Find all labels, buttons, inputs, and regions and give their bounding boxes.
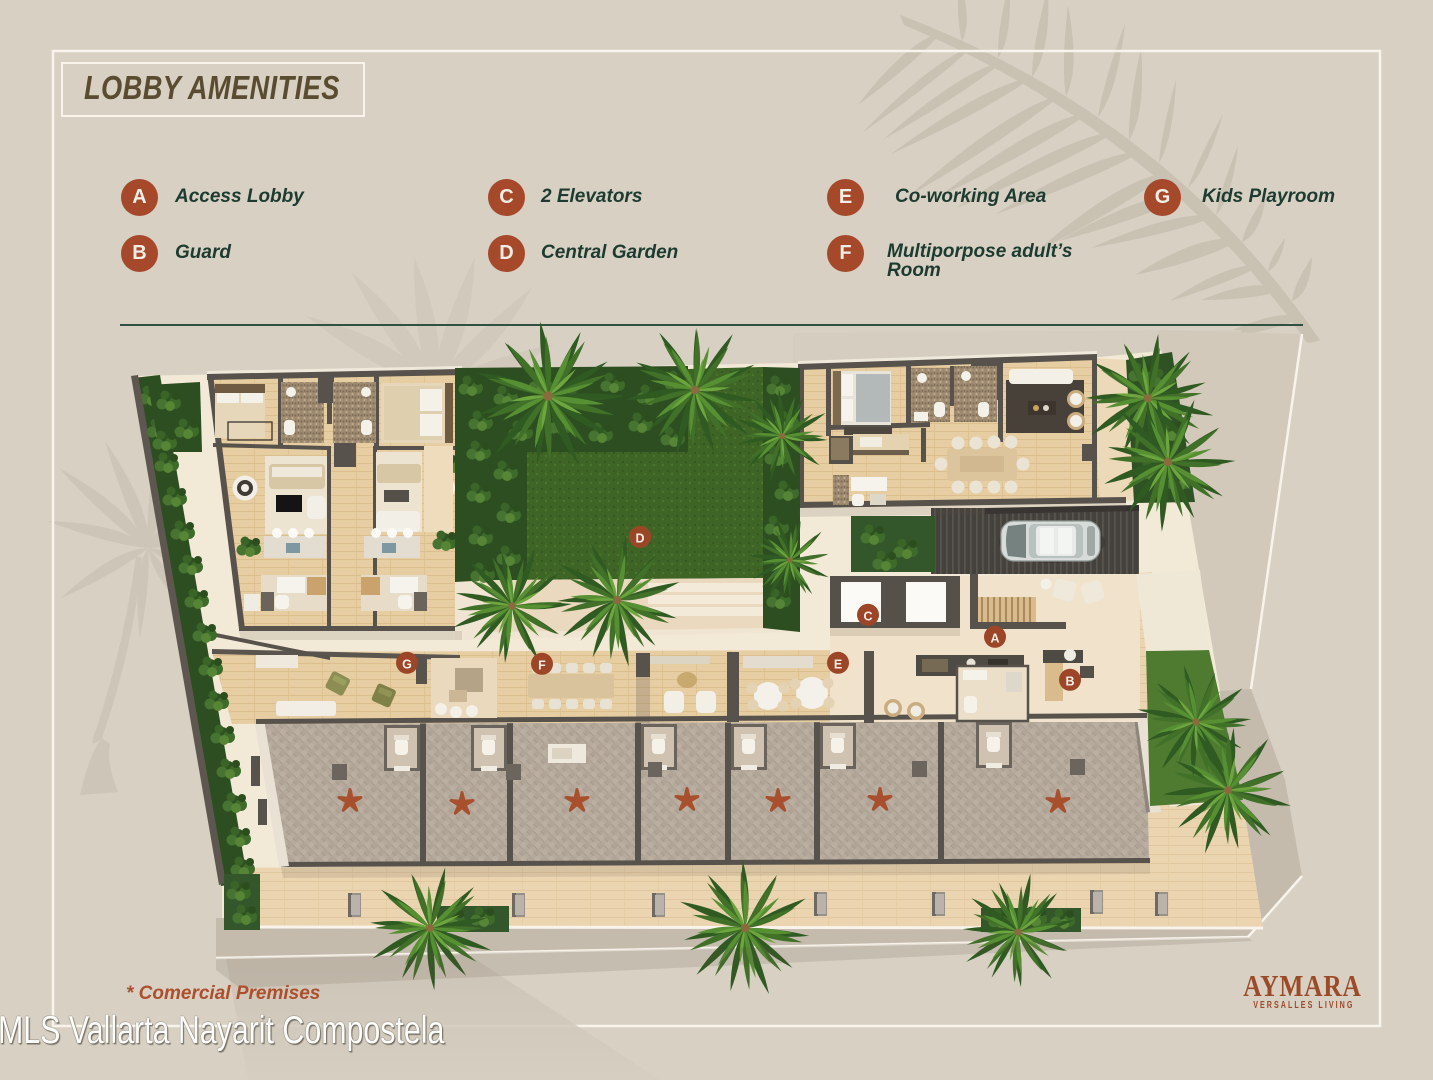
svg-text:F: F — [538, 658, 546, 672]
svg-text:B: B — [1065, 674, 1074, 688]
svg-text:A: A — [990, 631, 999, 645]
svg-text:C: C — [863, 609, 872, 623]
svg-text:D: D — [635, 531, 644, 545]
svg-text:G: G — [402, 657, 412, 671]
svg-text:E: E — [834, 657, 842, 671]
